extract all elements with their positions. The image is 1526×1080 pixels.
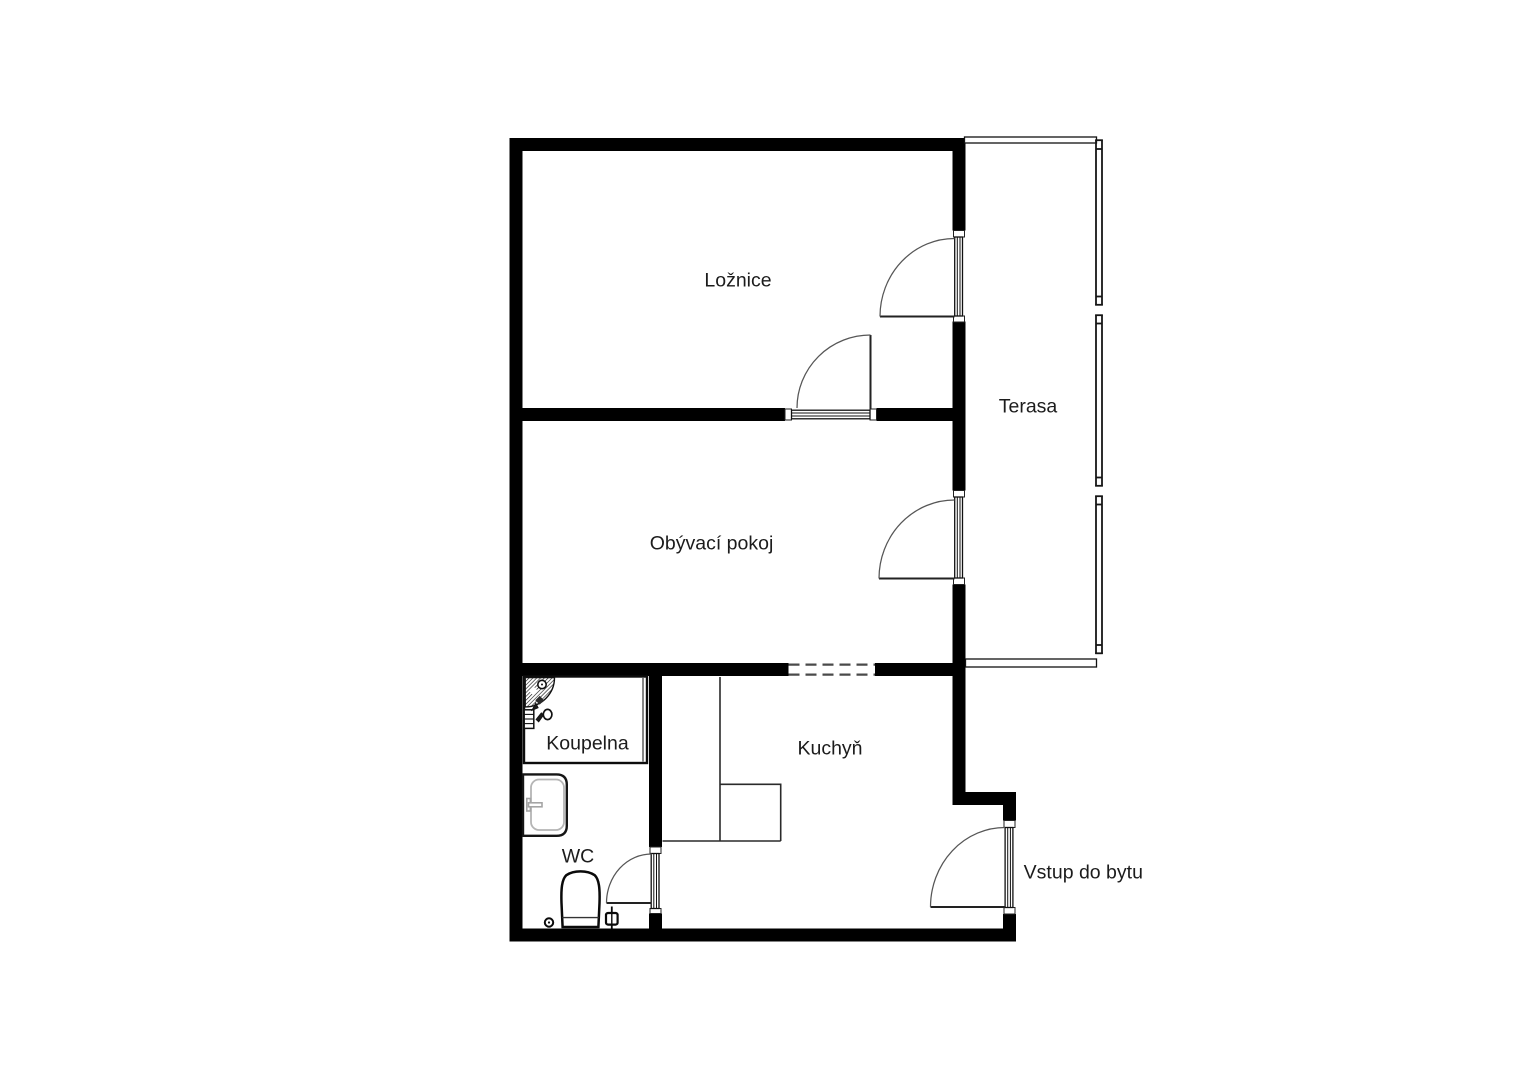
svg-text:Ložnice: Ložnice bbox=[704, 270, 771, 292]
svg-text:Terasa: Terasa bbox=[999, 395, 1058, 417]
svg-text:WC: WC bbox=[562, 845, 595, 867]
svg-text:Koupelna: Koupelna bbox=[546, 733, 629, 755]
svg-text:Vstup do bytu: Vstup do bytu bbox=[1024, 861, 1143, 883]
svg-text:Kuchyň: Kuchyň bbox=[797, 737, 862, 759]
svg-text:Obývací pokoj: Obývací pokoj bbox=[650, 532, 774, 554]
